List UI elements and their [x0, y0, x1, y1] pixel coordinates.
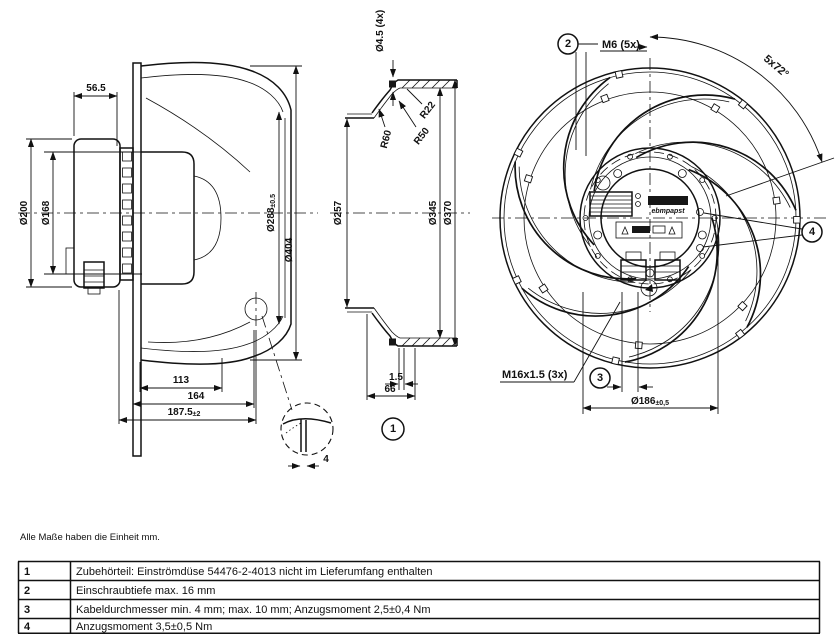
- callout-3-number: 3: [597, 372, 603, 384]
- dim-outlet-dia: Ø288±0.5: [266, 112, 279, 324]
- dim-max-dia-label: Ø404: [284, 237, 295, 262]
- callout-4-number: 4: [809, 226, 816, 238]
- row-3-text: Kabeldurchmesser min. 4 mm; max. 10 mm; …: [76, 604, 431, 616]
- detail-circle: 4: [281, 403, 333, 466]
- dim-inner-dia-label: Ø257: [333, 200, 344, 225]
- row-1-number: 1: [24, 566, 30, 578]
- face-hole: [596, 176, 610, 190]
- row-3-number: 3: [24, 604, 30, 616]
- dim-screw-m6: M6 (5x): [600, 39, 647, 51]
- dim-blade-angle: 5x72°: [650, 37, 834, 196]
- motor-flange-strip: [120, 148, 133, 280]
- dim-outer-dia-label: Ø370: [443, 200, 454, 225]
- callout-2-number: 2: [565, 38, 571, 50]
- row-2-number: 2: [24, 585, 30, 597]
- r50-label: R50: [412, 126, 432, 148]
- warning-label: [616, 222, 682, 238]
- front-view: ebmpapst: [489, 34, 834, 414]
- row-4-text: Anzugsmoment 3,5±0,5 Nm: [76, 621, 212, 633]
- screw-m6-label: M6 (5x): [602, 39, 640, 51]
- row-4-number: 4: [24, 621, 31, 633]
- brand-logo: ebmpapst: [651, 208, 685, 215]
- legend-table: 1 Zubehörteil: Einströmdüse 54476-2-4013…: [18, 562, 820, 634]
- rotor-cup: [141, 152, 194, 284]
- dim-164: 164: [133, 330, 254, 408]
- dim-outlet-dia-label: Ø288±0.5: [266, 194, 277, 232]
- dim-spigot-dia-label: Ø168: [41, 200, 52, 225]
- dim-bolt-dia: Ø345: [428, 88, 440, 338]
- table-row-3: 3 Kabeldurchmesser min. 4 mm; max. 10 mm…: [24, 604, 431, 616]
- dim-bolt-dia-label: Ø345: [428, 200, 439, 225]
- r60-label: R60: [379, 129, 394, 150]
- dim-total-depth-label: 187.5±2: [168, 407, 201, 418]
- dim-lip-label: 1.5: [389, 372, 403, 383]
- dim-depth-66-label: 66: [384, 384, 396, 395]
- row-1-text: Zubehörteil: Einströmdüse 54476-2-4013 n…: [76, 566, 433, 578]
- side-view: 56.5 Ø200 Ø168 Ø288±0.5 Ø404: [18, 63, 333, 466]
- radius-labels: R22 R50 R60: [379, 89, 438, 150]
- dim-hole-dia-label: Ø4.5 (4x): [375, 10, 386, 52]
- dim-pitch-dia-label: Ø186±0,5: [631, 396, 669, 407]
- callout-1-number: 1: [390, 423, 396, 435]
- dim-thread-m16: M16x1.5 (3x): [500, 302, 620, 382]
- motor-hub: [580, 148, 720, 288]
- heatsink-ribs: [590, 192, 632, 216]
- dim-depth-56: 56.5: [74, 83, 117, 146]
- flange-hole-section: [389, 81, 396, 88]
- dim-outer-dia: Ø370: [443, 80, 455, 346]
- dim-hole-dia: Ø4.5 (4x): [375, 10, 393, 106]
- units-note: Alle Maße haben die Einheit mm.: [20, 532, 160, 543]
- row-2-text: Einschraubtiefe max. 16 mm: [76, 585, 215, 597]
- callout-1: 1: [382, 418, 404, 440]
- table-row-4: 4 Anzugsmoment 3,5±0,5 Nm: [24, 621, 212, 633]
- hub-screw-a: [697, 209, 704, 216]
- mounting-plate: [133, 63, 141, 456]
- thread-m16-label: M16x1.5 (3x): [502, 369, 568, 381]
- dim-164-label: 164: [188, 391, 205, 402]
- side-cable-gland: [84, 262, 104, 294]
- dim-depth-66: 66: [367, 314, 415, 400]
- table-row-2: 2 Einschraubtiefe max. 16 mm: [24, 585, 215, 597]
- dim-inner-dia: Ø257: [333, 119, 347, 307]
- fan-technical-drawing: 56.5 Ø200 Ø168 Ø288±0.5 Ø404: [0, 0, 835, 634]
- table-row-1: 1 Zubehörteil: Einströmdüse 54476-2-4013…: [24, 566, 433, 578]
- blade-angle-label: 5x72°: [761, 53, 791, 81]
- technical-drawing-page: 56.5 Ø200 Ø168 Ø288±0.5 Ø404: [0, 0, 835, 634]
- dim-113-label: 113: [173, 375, 190, 386]
- dim-motor-dia-label: Ø200: [19, 200, 30, 225]
- section-view: Ø4.5 (4x) R22 R50 R60 Ø257 Ø345 Ø370: [330, 10, 470, 440]
- hub-screw-b: [697, 245, 704, 252]
- motor-connector: [66, 248, 74, 274]
- hub-cone: [194, 176, 221, 260]
- dim-depth-56-label: 56.5: [86, 83, 106, 94]
- callout-3: 3: [590, 292, 653, 392]
- flange-hole-section-bottom: [389, 339, 396, 346]
- detail-leader: [262, 316, 292, 410]
- nameplate-bar: [648, 196, 688, 205]
- detail-dim-4-label: 4: [323, 454, 329, 465]
